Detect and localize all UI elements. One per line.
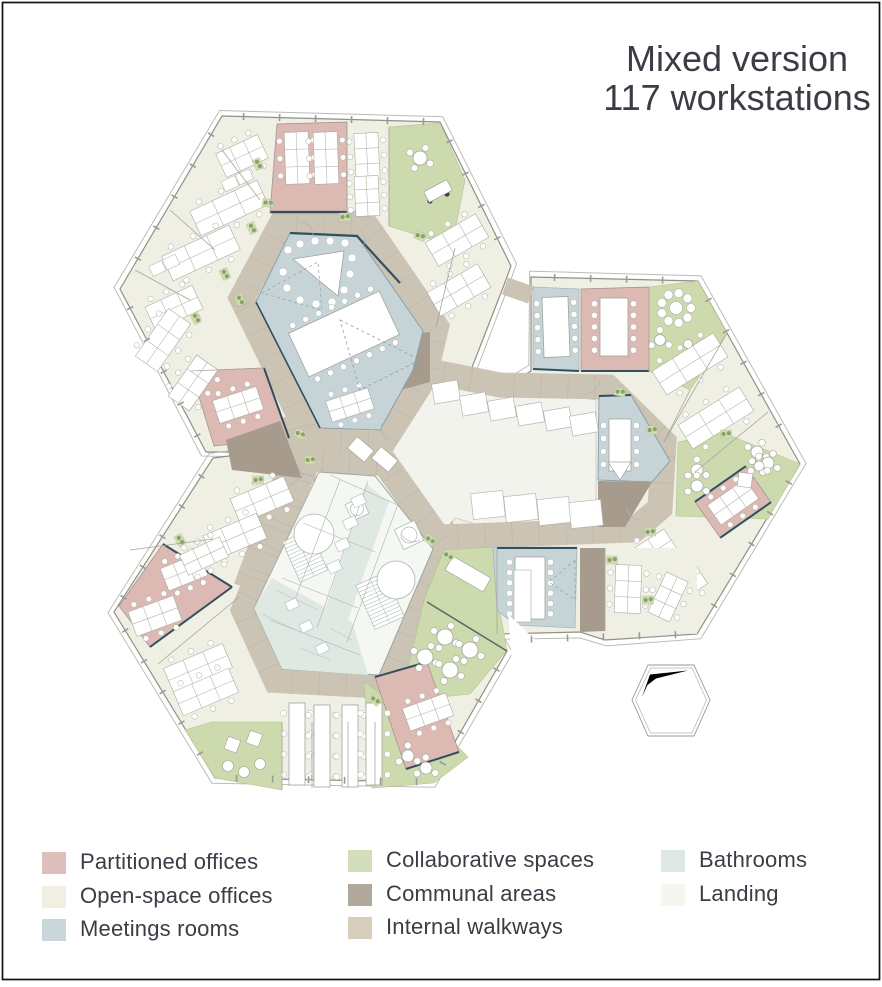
svg-text:Internal walkways: Internal walkways [386,914,563,939]
svg-text:Bathrooms: Bathrooms [699,847,807,872]
svg-text:Communal areas: Communal areas [386,881,556,906]
svg-text:Mixed version: Mixed version [626,38,848,79]
svg-text:Collaborative spaces: Collaborative spaces [386,847,594,872]
svg-text:Open-space offices: Open-space offices [80,883,273,908]
svg-text:Landing: Landing [699,881,779,906]
svg-text:117 workstations: 117 workstations [603,77,870,118]
svg-text:Meetings rooms: Meetings rooms [80,916,239,941]
svg-text:Partitioned offices: Partitioned offices [80,849,258,874]
